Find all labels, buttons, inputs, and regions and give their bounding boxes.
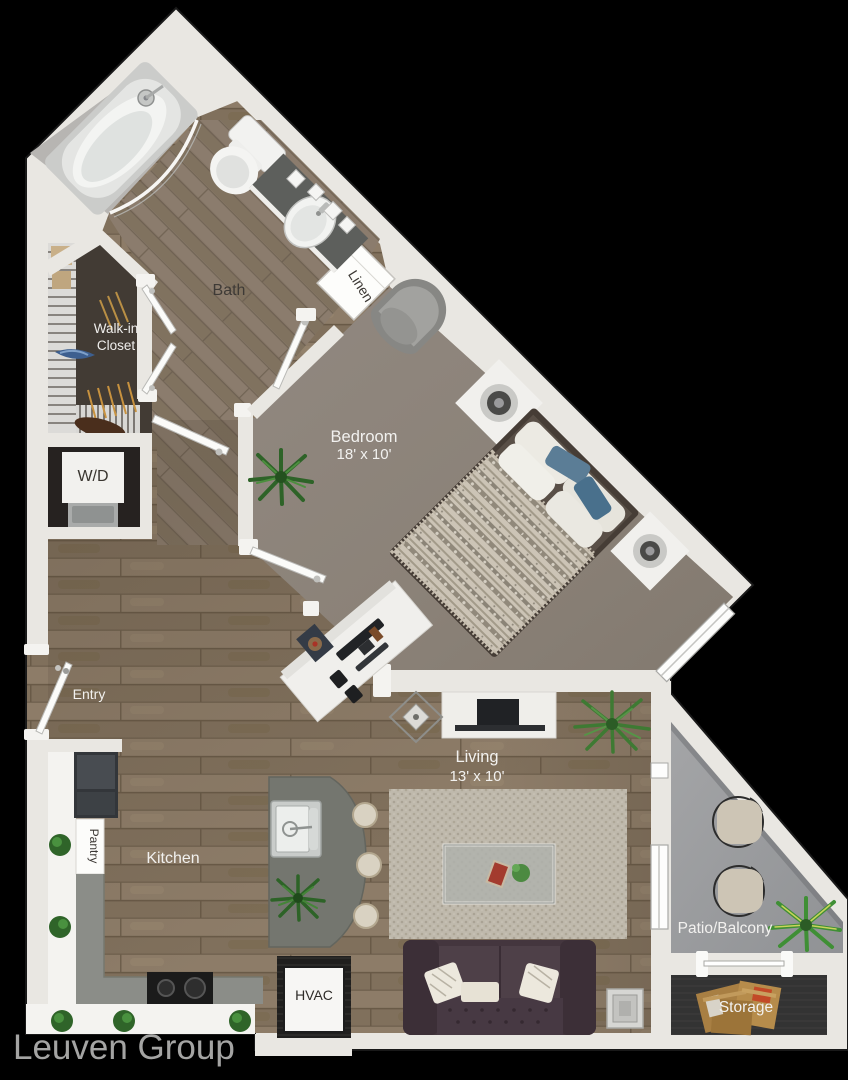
svg-text:HVAC: HVAC bbox=[295, 987, 333, 1003]
svg-text:18' x 10': 18' x 10' bbox=[337, 446, 392, 463]
svg-text:Closet: Closet bbox=[97, 338, 136, 353]
svg-text:Entry: Entry bbox=[73, 686, 106, 702]
svg-text:Pantry: Pantry bbox=[87, 829, 101, 864]
svg-text:Walk-in: Walk-in bbox=[94, 321, 139, 336]
svg-text:Living: Living bbox=[455, 748, 498, 766]
svg-text:Storage: Storage bbox=[719, 999, 773, 1016]
svg-text:W/D: W/D bbox=[77, 468, 108, 485]
svg-text:Bedroom: Bedroom bbox=[331, 428, 398, 446]
svg-text:Patio/Balcony: Patio/Balcony bbox=[678, 920, 773, 937]
svg-text:Leuven Group: Leuven Group bbox=[13, 1028, 235, 1067]
svg-text:13' x 10': 13' x 10' bbox=[450, 768, 505, 785]
svg-text:Kitchen: Kitchen bbox=[146, 850, 199, 867]
svg-text:Bath: Bath bbox=[213, 282, 246, 299]
